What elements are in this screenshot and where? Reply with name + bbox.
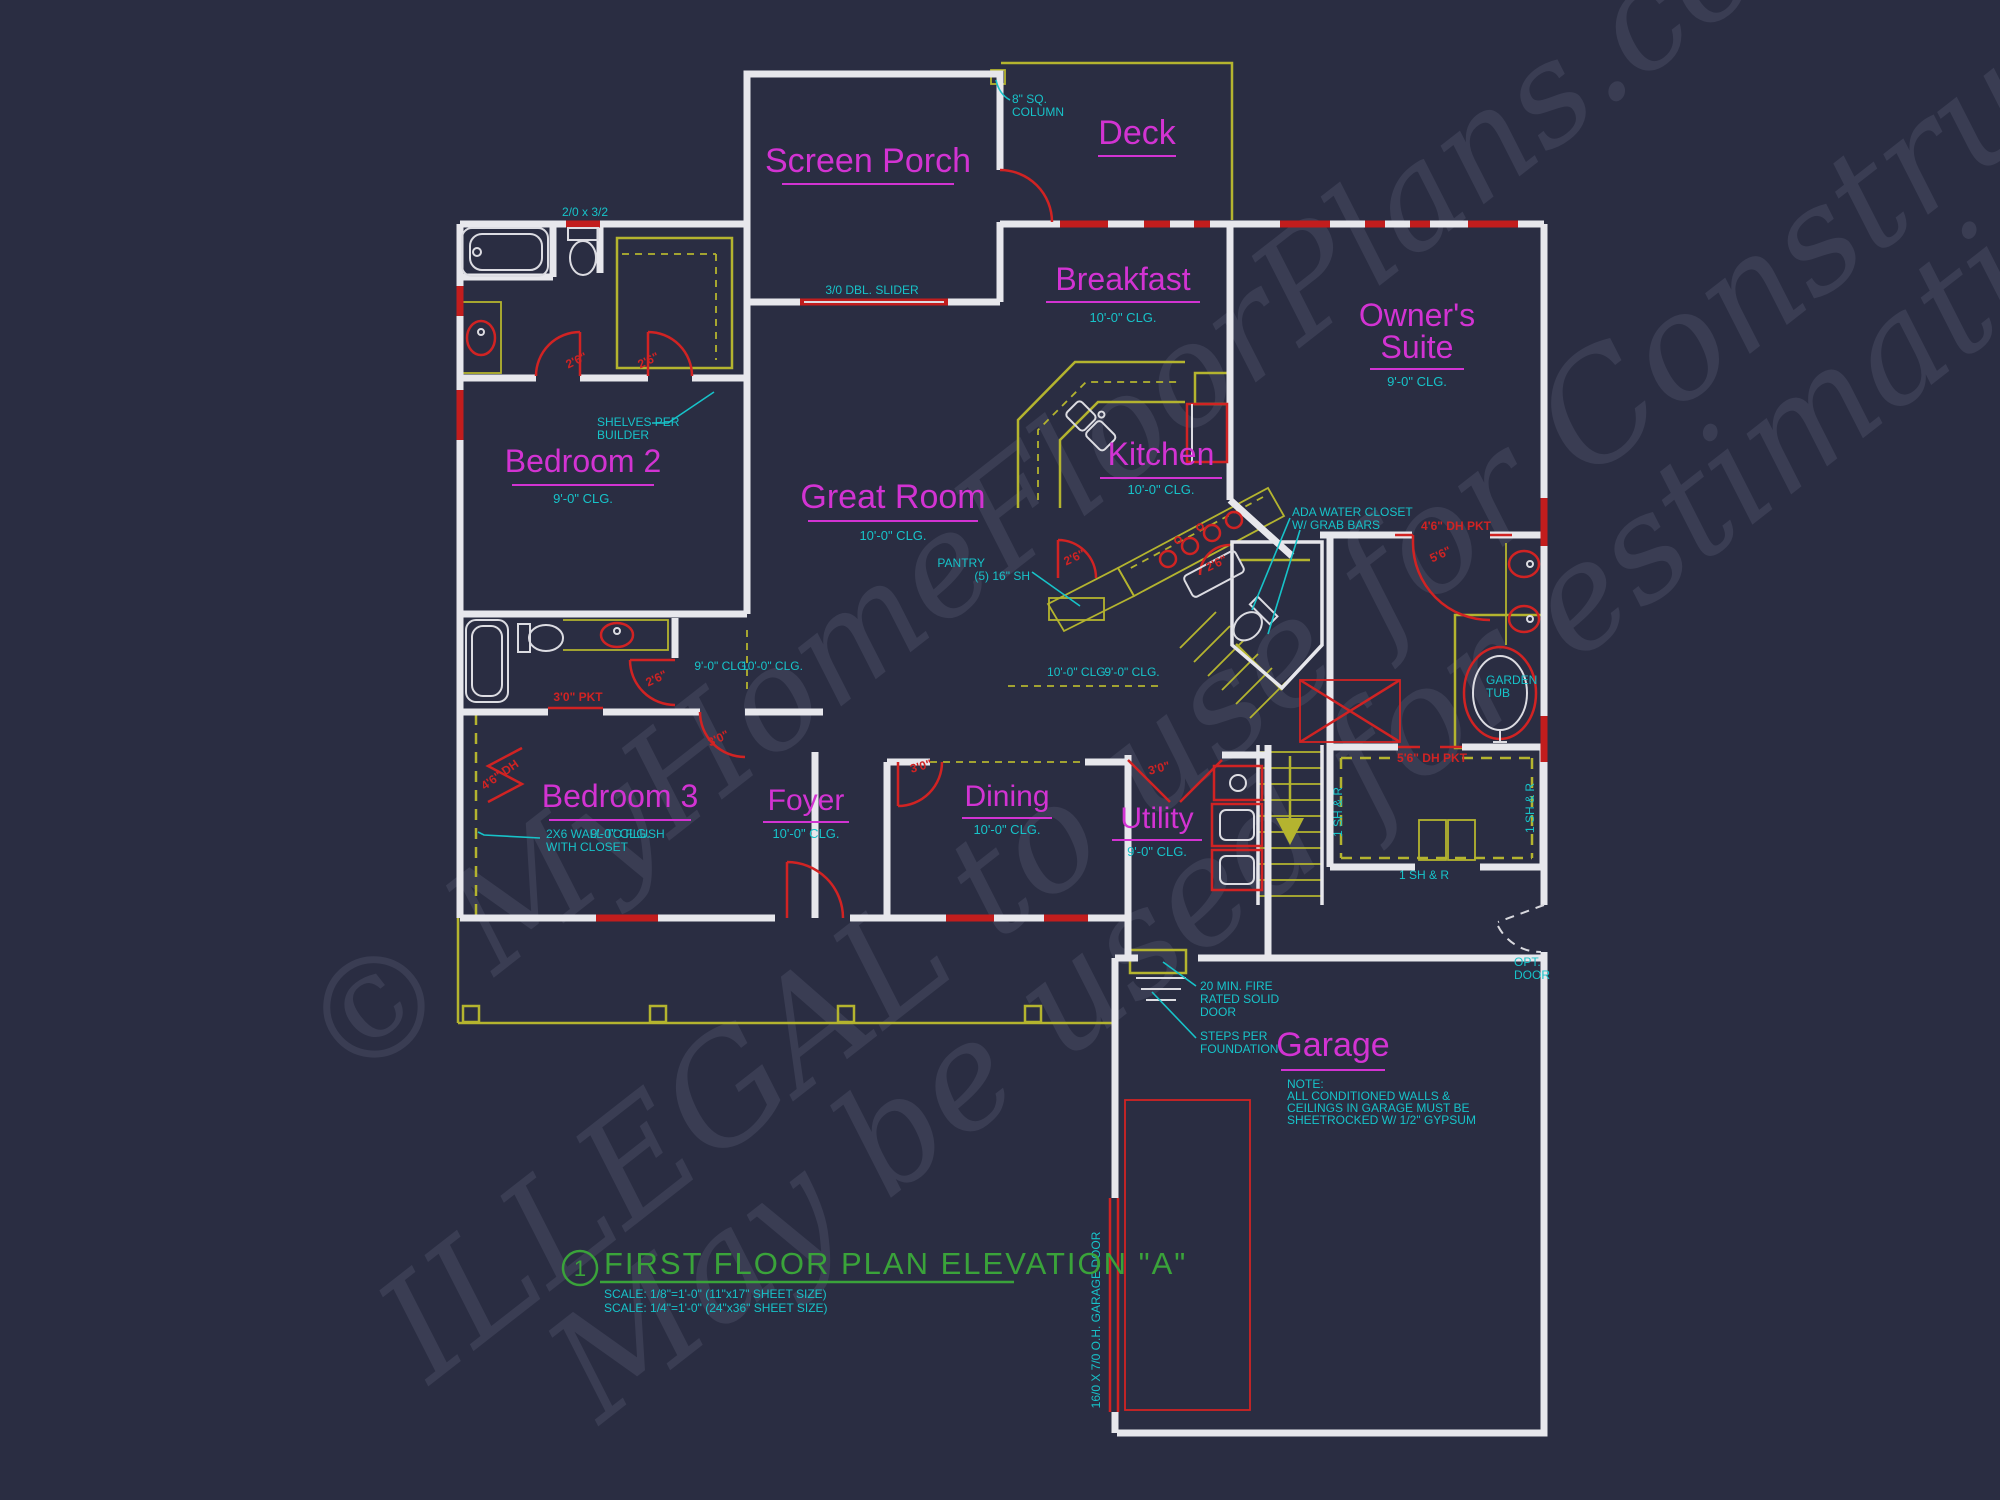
- bath3-toilet: [518, 624, 563, 652]
- kitchen-label: Kitchen: [1108, 436, 1215, 472]
- column-note-2: COLUMN: [1012, 105, 1064, 119]
- fire-door-note-3: DOOR: [1200, 1005, 1236, 1019]
- floor-plan-sheet: © MyHomeFloorPlans.com ILLEGAL to use fo…: [0, 0, 2000, 1500]
- garden-tub-note-1: GARDEN: [1486, 673, 1537, 687]
- bath3-sink: [601, 623, 633, 647]
- owners-suite-ceiling: 9'-0" CLG.: [1387, 374, 1447, 389]
- column-note-1: 8" SQ.: [1012, 92, 1047, 106]
- closet-door-leaf: [1448, 820, 1475, 860]
- bedroom3-label: Bedroom 3: [542, 778, 699, 814]
- closet-shelf-left: 1 SH & R: [1331, 787, 1345, 837]
- kitchen-hall-clg9: 9'-0" CLG.: [1104, 665, 1159, 679]
- steps-note-2: FOUNDATION: [1200, 1042, 1278, 1056]
- bath3-vanity: [563, 620, 668, 650]
- closet-pocket-size: 5'6" DH PKT: [1397, 751, 1468, 765]
- pantry-shelf: [1049, 598, 1104, 620]
- watermark: © MyHomeFloorPlans.com ILLEGAL to use fo…: [271, 0, 2000, 1454]
- porch-deck-door-swing: [1000, 170, 1052, 222]
- slider-note: 3/0 DBL. SLIDER: [825, 283, 919, 297]
- dining-ceiling: 10'-0" CLG.: [973, 822, 1040, 837]
- opt-door-note-1: OPT.: [1514, 955, 1541, 969]
- bath3-pocket-size: 3'0" PKT: [553, 690, 603, 704]
- bedroom2-closet: [617, 238, 732, 368]
- bath2-toilet: [568, 228, 598, 275]
- kitchen-hall-clg10: 10'-0" CLG.: [1047, 665, 1109, 679]
- owners-suite-label-1: Owner's: [1359, 297, 1475, 333]
- opt-door-note-2: DOOR: [1514, 968, 1550, 982]
- optional-door-swing: [1498, 905, 1544, 952]
- screen-porch-label: Screen Porch: [765, 142, 971, 180]
- bath2-door-size: 2'6": [563, 349, 589, 371]
- window-size-note: 2/0 x 3/2: [562, 205, 608, 219]
- porch-column: [650, 1006, 666, 1022]
- fire-door-note-2: RATED SOLID: [1200, 992, 1279, 1006]
- great-room-ceiling: 10'-0" CLG.: [859, 528, 926, 543]
- closet-shelf-right: 1 SH & R: [1523, 783, 1537, 833]
- owners-suite-label-2: Suite: [1381, 329, 1454, 365]
- floor-plan-drawing: © MyHomeFloorPlans.com ILLEGAL to use fo…: [0, 0, 2000, 1500]
- garden-tub-note-2: TUB: [1486, 686, 1510, 700]
- dining-label: Dining: [964, 780, 1049, 813]
- plan-scale-2: SCALE: 1/4"=1'-0" (24"x36" SHEET SIZE): [604, 1301, 828, 1315]
- garage-note-4: SHEETROCKED W/ 1/2" GYPSUM: [1287, 1113, 1476, 1127]
- bedroom2-closet-shelves: [622, 254, 716, 360]
- breakfast-ceiling: 10'-0" CLG.: [1089, 310, 1156, 325]
- wall-note-2: WITH CLOSET: [546, 840, 629, 854]
- ada-note-2: W/ GRAB BARS: [1292, 518, 1380, 532]
- foyer-label: Foyer: [768, 784, 845, 817]
- bath2-tub: [462, 228, 548, 276]
- hall-clg10: 10'-0" CLG.: [741, 659, 803, 673]
- garage-label: Garage: [1276, 1026, 1389, 1064]
- plan-scale-1: SCALE: 1/8"=1'-0" (11"x17" SHEET SIZE): [604, 1287, 827, 1301]
- bath2-sink: [467, 321, 495, 355]
- shelves-note-1: SHELVES PER: [597, 415, 680, 429]
- shelves-note-2: BUILDER: [597, 428, 649, 442]
- garage-overhead-door: [1110, 1198, 1118, 1412]
- utility-label: Utility: [1120, 802, 1193, 835]
- fire-door-note-1: 20 MIN. FIRE: [1200, 979, 1273, 993]
- breakfast-label: Breakfast: [1055, 261, 1190, 297]
- title-number: 1: [574, 1256, 586, 1281]
- bath3-tub: [466, 620, 508, 702]
- deck-label: Deck: [1098, 114, 1176, 152]
- pantry-note-2: (5) 16" SH: [974, 569, 1030, 583]
- steps-note-1: STEPS PER: [1200, 1029, 1268, 1043]
- bedroom2-label: Bedroom 2: [505, 443, 662, 479]
- closet-shelf-bottom: 1 SH & R: [1399, 868, 1449, 882]
- ada-note-1: ADA WATER CLOSET: [1292, 505, 1413, 519]
- foyer-ceiling: 10'-0" CLG.: [772, 826, 839, 841]
- bedroom2-ceiling: 9'-0" CLG.: [553, 491, 613, 506]
- wc-pocket-size: 4'6" DH PKT: [1421, 519, 1492, 533]
- wall-note-1: 2X6 WALL TO FLUSH: [546, 827, 665, 841]
- pantry-note-1: PANTRY: [937, 556, 985, 570]
- plan-title: FIRST FLOOR PLAN ELEVATION "A": [604, 1246, 1187, 1281]
- kitchen-ceiling: 10'-0" CLG.: [1127, 482, 1194, 497]
- great-room-label: Great Room: [800, 478, 985, 516]
- utility-ceiling: 9'-0" CLG.: [1127, 844, 1187, 859]
